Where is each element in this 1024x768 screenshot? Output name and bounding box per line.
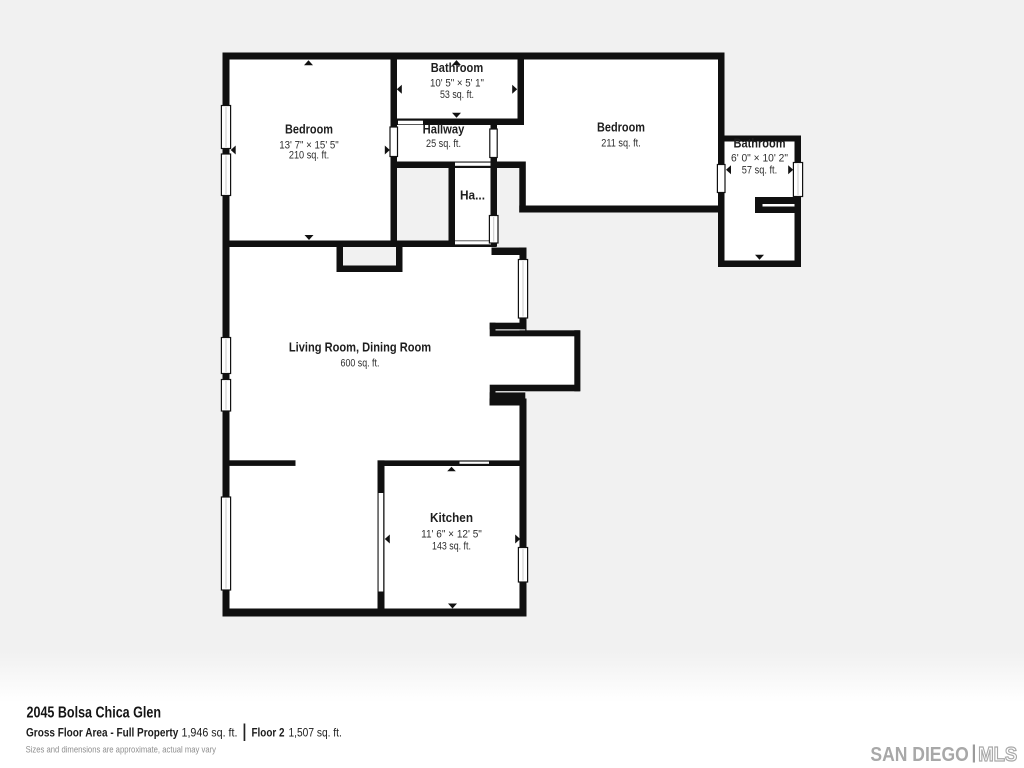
svg-text:1,507 sq. ft.: 1,507 sq. ft. — [289, 726, 342, 740]
svg-text:6' 0" × 10' 2": 6' 0" × 10' 2" — [731, 152, 788, 164]
svg-text:Hallway: Hallway — [423, 122, 465, 136]
svg-text:57 sq. ft.: 57 sq. ft. — [742, 164, 777, 176]
svg-text:1,946 sq. ft.: 1,946 sq. ft. — [182, 726, 238, 740]
svg-text:10' 5" × 5' 1": 10' 5" × 5' 1" — [430, 77, 484, 89]
svg-text:53 sq. ft.: 53 sq. ft. — [440, 89, 474, 101]
svg-text:Living Room, Dining Room: Living Room, Dining Room — [289, 341, 431, 355]
svg-text:211 sq. ft.: 211 sq. ft. — [601, 137, 641, 149]
svg-text:SAN DIEGO: SAN DIEGO — [870, 744, 968, 766]
svg-text:Kitchen: Kitchen — [430, 511, 473, 525]
svg-text:Floor 2: Floor 2 — [252, 726, 285, 740]
svg-text:MLS: MLS — [978, 744, 1017, 766]
svg-text:Sizes and dimensions are appro: Sizes and dimensions are approximate, ac… — [26, 745, 217, 756]
svg-text:210 sq. ft.: 210 sq. ft. — [289, 150, 329, 162]
svg-text:Bedroom: Bedroom — [597, 120, 645, 134]
svg-text:Bedroom: Bedroom — [285, 123, 333, 137]
svg-text:25 sq. ft.: 25 sq. ft. — [426, 138, 461, 150]
svg-text:Bathroom: Bathroom — [431, 61, 483, 75]
svg-text:600 sq. ft.: 600 sq. ft. — [341, 358, 380, 370]
svg-text:143 sq. ft.: 143 sq. ft. — [432, 541, 471, 553]
svg-text:Bathroom: Bathroom — [734, 137, 786, 151]
svg-text:Gross Floor Area - Full Proper: Gross Floor Area - Full Property — [26, 726, 179, 740]
svg-text:2045 Bolsa Chica Glen: 2045 Bolsa Chica Glen — [27, 705, 162, 722]
svg-text:Ha...: Ha... — [460, 189, 485, 203]
svg-text:11' 6" × 12' 5": 11' 6" × 12' 5" — [421, 528, 482, 540]
